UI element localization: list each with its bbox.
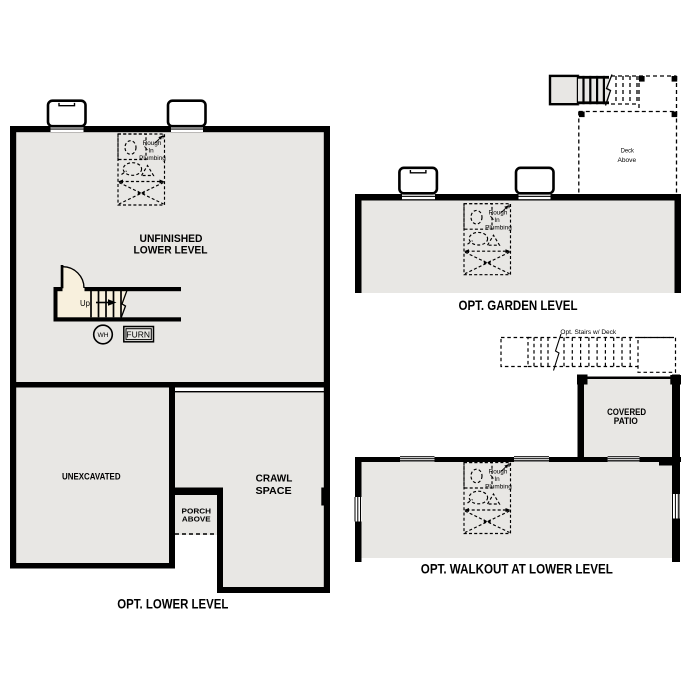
svg-text:SPACE: SPACE bbox=[256, 486, 292, 497]
svg-text:UNFINISHED: UNFINISHED bbox=[140, 233, 203, 245]
svg-text:PATIO: PATIO bbox=[614, 416, 638, 427]
svg-text:LOWER LEVEL: LOWER LEVEL bbox=[134, 245, 208, 257]
svg-text:ABOVE: ABOVE bbox=[182, 514, 211, 523]
svg-text:Opt. Stairs w/ Deck: Opt. Stairs w/ Deck bbox=[560, 329, 616, 336]
svg-text:Above: Above bbox=[618, 157, 637, 164]
svg-text:Deck: Deck bbox=[621, 148, 635, 155]
svg-text:WH: WH bbox=[98, 332, 109, 339]
svg-text:OPT. LOWER LEVEL: OPT. LOWER LEVEL bbox=[117, 596, 228, 612]
svg-text:Up: Up bbox=[80, 299, 91, 308]
svg-text:UNEXCAVATED: UNEXCAVATED bbox=[62, 472, 121, 482]
svg-text:FURN: FURN bbox=[126, 330, 150, 339]
svg-text:OPT. WALKOUT AT LOWER LEVEL: OPT. WALKOUT AT LOWER LEVEL bbox=[421, 561, 613, 577]
svg-text:CRAWL: CRAWL bbox=[256, 474, 293, 485]
svg-text:OPT. GARDEN LEVEL: OPT. GARDEN LEVEL bbox=[459, 297, 578, 313]
